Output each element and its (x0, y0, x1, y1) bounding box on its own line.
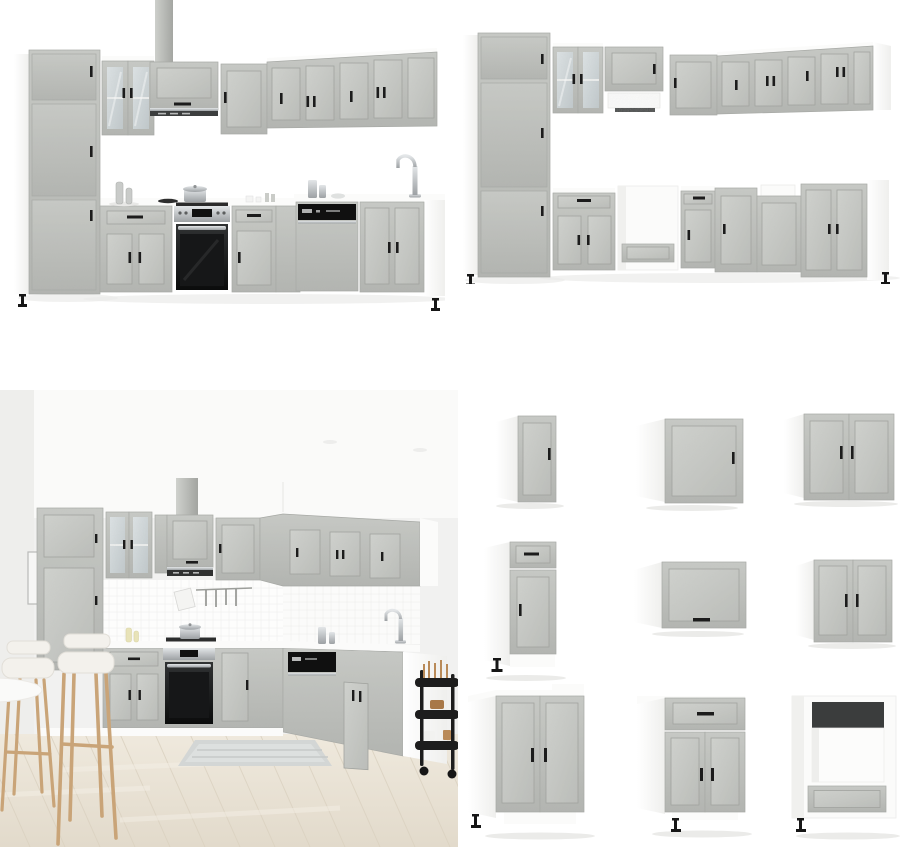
floor-shadow (83, 294, 445, 304)
bottles (109, 182, 139, 206)
module-wall-cabinet-single (636, 419, 743, 511)
ceiling (0, 390, 458, 518)
cooking-pot (183, 185, 207, 202)
module-wall-cabinet-flip-up (634, 562, 746, 637)
panel-module-grid (460, 390, 900, 847)
extractor-hood (150, 108, 218, 116)
canister (319, 185, 326, 198)
module-sink-base-cabinet (468, 684, 595, 840)
pan (158, 199, 178, 203)
hood-chimney (176, 478, 198, 520)
module-base-cabinet-drawer-door (484, 542, 566, 681)
panel-kitchen-scene (0, 390, 458, 847)
panel-kitchen-set-full (8, 0, 445, 315)
panel-kitchen-set-bare (455, 22, 900, 284)
hob (176, 203, 228, 207)
oven-cavity (812, 702, 884, 728)
module-base-cabinet-drawer-double-doors (637, 696, 752, 838)
rug (178, 740, 332, 766)
dishwasher (288, 652, 336, 676)
faucet (398, 156, 421, 198)
built-in-oven (163, 648, 215, 724)
bowl (331, 193, 345, 198)
module-wall-cabinet-double (796, 560, 896, 649)
built-in-oven (174, 206, 230, 290)
module-wall-cabinet-narrow (496, 416, 564, 509)
module-wall-cabinet-double-wide (784, 414, 898, 507)
module-oven-housing-cabinet (792, 696, 900, 840)
canister (308, 180, 317, 198)
product-image-collage (0, 0, 900, 847)
